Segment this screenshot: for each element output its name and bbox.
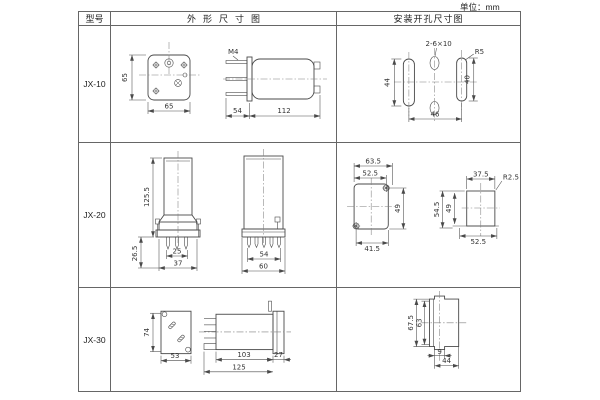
jx20-side-view <box>138 151 201 271</box>
jx10-thread-label: M4 <box>228 48 239 56</box>
jx30-mounting-cell: 67.5 63 9 44 <box>337 288 520 391</box>
jx20-dim-base-width: 37 <box>174 260 183 268</box>
jx20-outline-drawing: 125.5 26.5 25 37 54 60 <box>111 143 336 287</box>
jx30-dim-notch: 9 <box>437 347 441 356</box>
jx20-dim-height: 125.5 <box>143 187 151 207</box>
jx30-dim-width: 44 <box>442 356 451 365</box>
jx30-dim-plate-width: 53 <box>171 351 180 360</box>
jx30-mounting-view <box>413 291 467 369</box>
jx20-dim-pin-height: 26.5 <box>131 246 139 262</box>
model-label-jx30: JX-30 <box>79 288 111 391</box>
jx20-dim-outer-width: 63.5 <box>365 157 381 166</box>
jx10-radius-label: R5 <box>475 47 484 56</box>
jx30-mounting-drawing: 67.5 63 9 44 <box>337 288 520 391</box>
header-mounting: 安装开孔尺寸图 <box>337 12 520 26</box>
jx10-holes-label: 2-6×10 <box>425 39 451 48</box>
jx10-dim-right-height: 40 <box>463 75 472 84</box>
jx30-mounting-labels: 67.5 63 9 44 <box>406 315 452 365</box>
jx20-dim-base2-width: 60 <box>259 263 268 271</box>
model-label-jx20: JX-20 <box>79 143 111 288</box>
jx20-radius-label: R2.5 <box>503 173 519 182</box>
model-label-jx10: JX-10 <box>79 26 111 143</box>
jx10-dim-body: 112 <box>277 107 290 115</box>
jx10-dim-left-height: 44 <box>382 78 391 87</box>
jx10-dim-span: 46 <box>431 110 440 119</box>
jx10-dim-plate-width: 65 <box>165 103 174 111</box>
header-outline: 外形尺寸图 <box>111 12 337 26</box>
jx20-dim-bottom-width: 41.5 <box>364 244 380 253</box>
jx20-dim-top-width: 37.5 <box>473 170 489 179</box>
jx10-dim-plate-height: 65 <box>121 73 129 82</box>
jx20-dim-outer-height: 54.5 <box>432 202 441 218</box>
relay-dimension-sheet: 单位：mm 型号 外形尺寸图 安装开孔尺寸图 JX-10 <box>0 0 600 400</box>
jx10-mounting-drawing: 2-6×10 R5 44 40 46 <box>337 26 520 142</box>
jx10-outline-labels: 65 65 M4 54 112 <box>121 48 291 115</box>
header-model: 型号 <box>79 12 111 26</box>
jx30-outline-drawing: 74 53 103 27 125 <box>111 288 336 391</box>
jx20-mounting-labels: 63.5 52.5 49 41.5 37.5 R2.5 54.5 49 52.5 <box>362 157 519 253</box>
jx20-mounting-cell: 63.5 52.5 49 41.5 37.5 R2.5 54.5 49 52.5 <box>337 143 520 288</box>
jx20-mounting-drawing: 63.5 52.5 49 41.5 37.5 R2.5 54.5 49 52.5 <box>337 143 520 287</box>
jx30-dim-total: 125 <box>232 362 245 371</box>
jx30-outline-cell: 74 53 103 27 125 <box>111 288 337 391</box>
jx20-dim-pins-width: 25 <box>173 248 182 256</box>
jx30-dim-flange: 27 <box>274 350 283 359</box>
jx30-dim-plate-height: 74 <box>142 327 151 337</box>
jx20-dim-inner-height: 49 <box>444 204 453 213</box>
jx20-dim-inner-width: 52.5 <box>362 169 378 178</box>
jx30-dim-inner-height: 63 <box>414 318 423 327</box>
jx20-dim-side-height: 49 <box>393 204 402 213</box>
jx10-outline-cell: 65 65 M4 54 112 <box>111 26 337 143</box>
jx10-outline-drawing: 65 65 M4 54 112 <box>111 26 336 142</box>
jx10-dim-stud: 54 <box>233 107 242 115</box>
jx10-mounting-labels: 2-6×10 R5 44 40 46 <box>382 39 484 118</box>
jx20-dim-bottom-width2: 52.5 <box>470 237 486 246</box>
jx20-dim-pins2-width: 54 <box>260 251 269 259</box>
dimension-table: 型号 外形尺寸图 安装开孔尺寸图 JX-10 <box>78 11 521 392</box>
jx30-dim-body: 103 <box>237 350 250 359</box>
jx20-outline-cell: 125.5 26.5 25 37 54 60 <box>111 143 337 288</box>
jx10-mounting-cell: 2-6×10 R5 44 40 46 <box>337 26 520 143</box>
